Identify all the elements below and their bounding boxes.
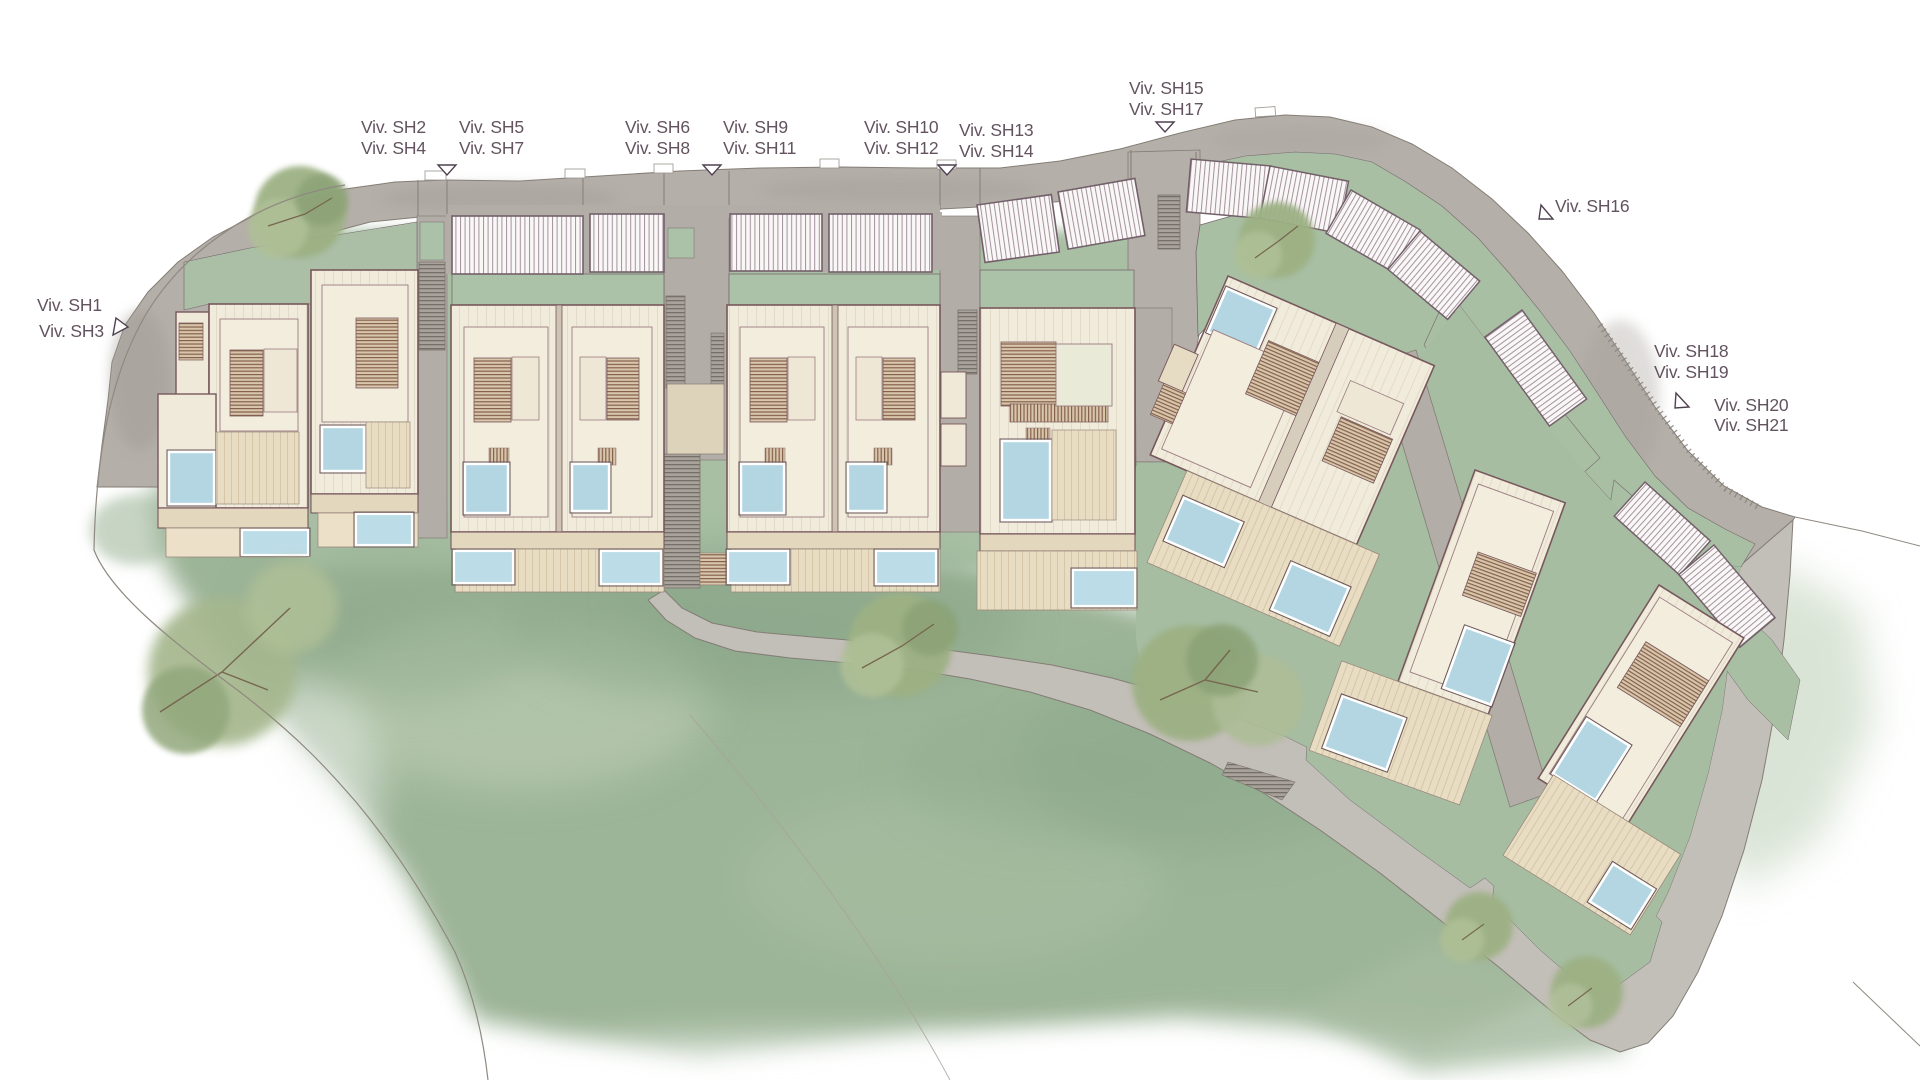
svg-text:Viv. SH1: Viv. SH1 — [37, 295, 102, 315]
svg-text:Viv. SH15: Viv. SH15 — [1129, 78, 1203, 98]
svg-text:Viv. SH9: Viv. SH9 — [723, 117, 788, 137]
svg-text:Viv. SH17: Viv. SH17 — [1129, 99, 1203, 119]
svg-text:Viv. SH8: Viv. SH8 — [625, 138, 690, 158]
svg-text:Viv. SH19: Viv. SH19 — [1654, 362, 1728, 382]
svg-text:Viv. SH7: Viv. SH7 — [459, 138, 524, 158]
svg-text:Viv. SH13: Viv. SH13 — [959, 120, 1033, 140]
svg-text:Viv. SH3: Viv. SH3 — [39, 321, 104, 341]
svg-text:Viv. SH18: Viv. SH18 — [1654, 341, 1728, 361]
svg-text:Viv. SH2: Viv. SH2 — [361, 117, 426, 137]
svg-text:Viv. SH20: Viv. SH20 — [1714, 395, 1789, 415]
svg-text:Viv. SH4: Viv. SH4 — [361, 138, 426, 158]
svg-text:Viv. SH10: Viv. SH10 — [864, 117, 939, 137]
svg-text:Viv. SH21: Viv. SH21 — [1714, 415, 1788, 435]
svg-text:Viv. SH5: Viv. SH5 — [459, 117, 524, 137]
svg-text:Viv. SH11: Viv. SH11 — [723, 138, 796, 158]
svg-text:Viv. SH16: Viv. SH16 — [1555, 196, 1629, 216]
svg-text:Viv. SH14: Viv. SH14 — [959, 141, 1034, 161]
svg-text:Viv. SH6: Viv. SH6 — [625, 117, 690, 137]
svg-text:Viv. SH12: Viv. SH12 — [864, 138, 938, 158]
